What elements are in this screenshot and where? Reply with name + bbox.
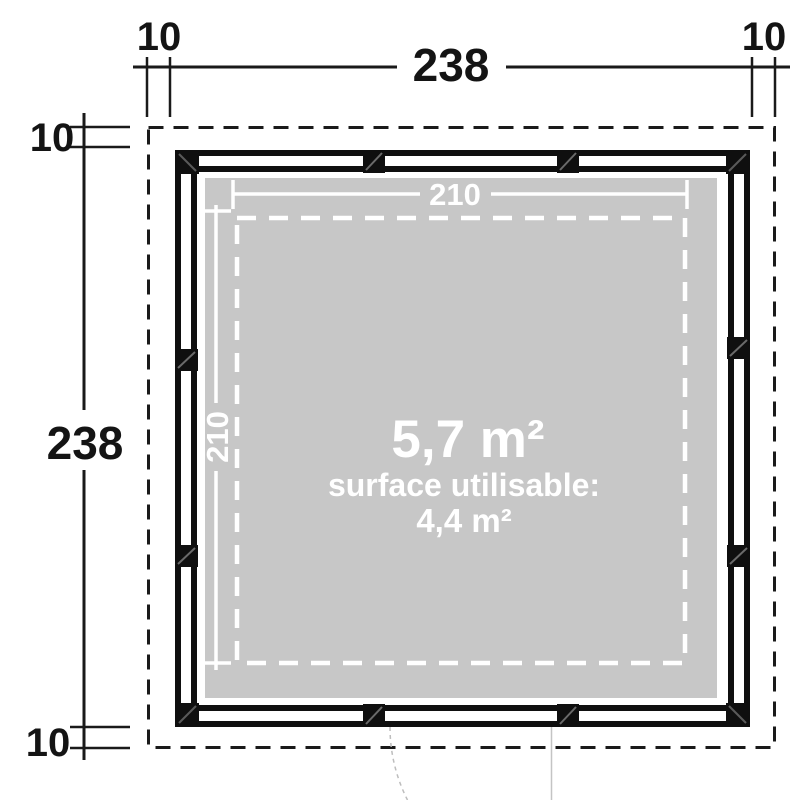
stud-mark-right-2: [727, 545, 750, 567]
stud-mark-left-1: [175, 349, 198, 371]
stud-mark-top-2: [557, 150, 579, 173]
overall-width-label: 238: [413, 39, 490, 91]
stud-mark-top-1: [363, 150, 385, 173]
floor-plan: 210 210 5,7 m² surface utilisable: 4,4 m…: [0, 0, 800, 800]
top-dimension-chain: 238 10 10: [133, 15, 790, 117]
overhang-side-bottom-label: 10: [26, 721, 71, 765]
gross-area-label: 5,7 m²: [391, 410, 544, 469]
stud-mark-left-2: [175, 545, 198, 567]
side-dimension-chain: 238 10 10: [26, 113, 130, 765]
interior-width-label: 210: [429, 177, 481, 212]
corner-post-top-right: [726, 150, 750, 174]
overhang-top-right-label: 10: [742, 15, 787, 59]
stud-mark-right-1: [727, 337, 750, 359]
usable-area-caption: surface utilisable:: [328, 467, 600, 503]
interior-height-label: 210: [200, 411, 235, 463]
corner-post-bottom-left: [175, 703, 199, 727]
overhang-side-top-label: 10: [30, 116, 75, 160]
overhang-top-left-label: 10: [137, 15, 182, 59]
floor-plan-drawing: 210 210 5,7 m² surface utilisable: 4,4 m…: [0, 0, 800, 800]
corner-post-top-left: [175, 150, 199, 174]
stud-mark-bottom-2: [557, 704, 579, 727]
door-swing-arc: [390, 727, 408, 800]
door-swing: [390, 727, 552, 800]
corner-post-bottom-right: [726, 703, 750, 727]
overall-height-label: 238: [47, 417, 124, 469]
stud-mark-bottom-1: [363, 704, 385, 727]
usable-area-label: 4,4 m²: [416, 502, 511, 539]
